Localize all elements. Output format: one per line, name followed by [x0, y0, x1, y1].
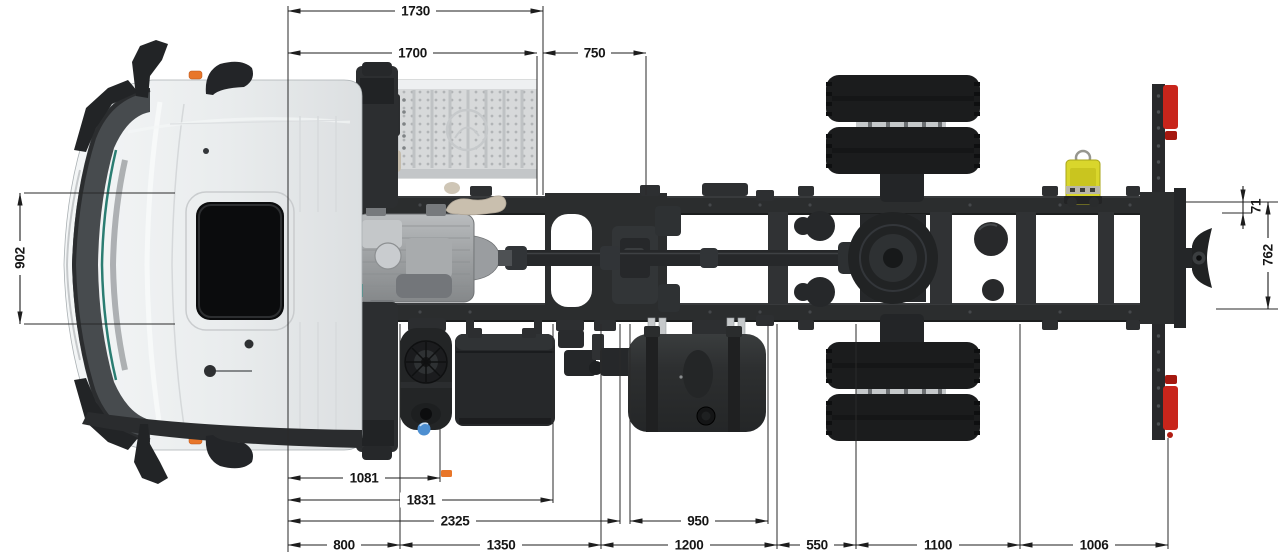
dual-wheel-bottom	[826, 342, 980, 441]
dim-label: 1831	[407, 493, 437, 508]
deck-plate	[390, 80, 537, 178]
dim-1730: 1730	[288, 4, 543, 20]
dim-1006: 1006	[1020, 538, 1168, 553]
truck	[64, 40, 1212, 484]
chassis-technical-drawing: 1730 1700 750 902 71	[0, 0, 1280, 554]
rear-reflector	[1165, 131, 1177, 140]
dim-label: 71	[1249, 198, 1264, 213]
dim-1700: 1700	[288, 46, 537, 62]
crossmember	[1016, 212, 1036, 304]
dim-1831: 1831	[288, 493, 553, 508]
transmission	[356, 204, 512, 310]
blue-cap	[418, 423, 431, 436]
dim-550: 550	[777, 538, 856, 553]
driveshaft	[505, 250, 850, 266]
dim-750: 750	[543, 46, 646, 62]
dim-1200: 1200	[601, 538, 777, 553]
dim-1081: 1081	[288, 471, 440, 486]
dim-label: 550	[806, 538, 828, 553]
sunroof-hatch	[196, 202, 284, 320]
dim-label: 1350	[487, 538, 516, 553]
yellow-unit	[1064, 151, 1102, 207]
cab	[64, 40, 362, 484]
dim-label: 800	[333, 538, 355, 553]
rear-reflector	[1165, 375, 1177, 384]
dim-762: 762	[1261, 202, 1276, 309]
roof-antenna	[204, 365, 216, 377]
dim-950: 950	[630, 514, 768, 529]
drawing-canvas: 1730 1700 750 902 71	[0, 0, 1280, 554]
crossmember	[1098, 212, 1114, 304]
dim-902: 902	[13, 193, 28, 324]
dim-label: 1100	[924, 538, 952, 553]
dim-label: 1200	[675, 538, 704, 553]
valve-cluster	[558, 330, 634, 376]
orange-fitting	[441, 470, 452, 477]
muffler	[400, 318, 452, 436]
air-tanks	[974, 222, 1008, 301]
dim-label: 902	[13, 247, 28, 269]
rear-lamp-red	[1163, 85, 1178, 129]
rear-end	[1140, 84, 1212, 440]
dual-wheel-top	[826, 75, 980, 174]
dim-label: 2325	[441, 514, 471, 529]
dim-1350: 1350	[400, 538, 601, 553]
dim-1100: 1100	[856, 538, 1020, 553]
fuel-tank	[628, 318, 766, 432]
battery-box	[455, 320, 555, 426]
dim-label: 1006	[1080, 538, 1110, 553]
dim-800: 800	[288, 538, 400, 553]
rear-lamp-red	[1163, 386, 1178, 430]
dim-label: 1700	[398, 46, 427, 61]
dim-label: 762	[1261, 244, 1276, 266]
dim-label: 750	[584, 46, 606, 61]
dim-label: 1081	[350, 471, 380, 486]
dim-2325: 2325	[288, 514, 620, 529]
dim-71: 71	[1243, 186, 1264, 229]
underslung-equipment	[400, 318, 766, 436]
marker-lamp-orange	[189, 71, 202, 79]
dim-label: 1730	[401, 4, 430, 19]
dim-label: 950	[687, 514, 709, 529]
